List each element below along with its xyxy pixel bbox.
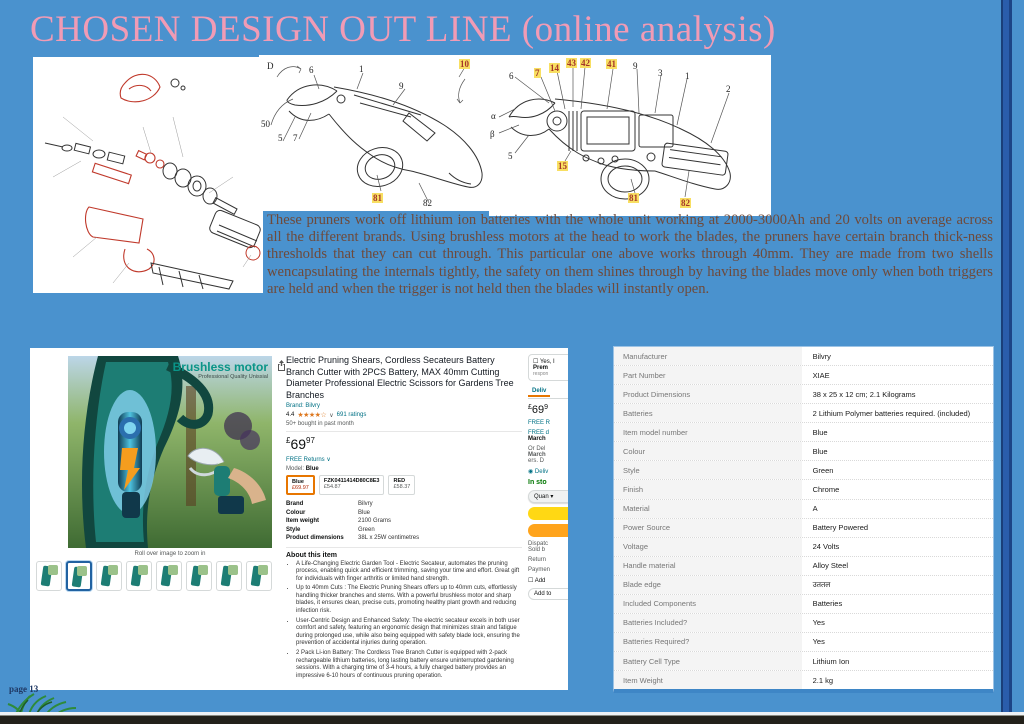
spec-value: XIAE: [802, 371, 993, 380]
delivery-tab[interactable]: Deliv: [528, 387, 550, 397]
spec-value: A: [802, 504, 993, 513]
free-returns-buybox-link[interactable]: FREE R: [528, 420, 568, 426]
diagram-part-label: 10: [459, 59, 470, 69]
product-thumbnail[interactable]: [66, 561, 92, 591]
diagram-part-label: β: [490, 129, 495, 139]
overview-spec-row: Brand Bilvry: [286, 500, 522, 509]
diagram-part-label: 9: [399, 81, 404, 91]
spec-table-row: Item Weight 2.1 kg: [614, 671, 993, 689]
spec-label: Batteries Included?: [614, 614, 802, 632]
product-main-image[interactable]: Brushless motor Professional Quality Uni…: [68, 356, 272, 548]
spec-label: Batteries: [614, 404, 802, 422]
amazon-product-screenshot: Brushless motor Professional Quality Uni…: [30, 348, 568, 690]
about-heading: About this item: [286, 552, 522, 559]
diagram-part-label: 81: [628, 193, 639, 203]
spec-value: उततल: [802, 580, 993, 590]
ratings-count-link[interactable]: 691 ratings: [337, 412, 367, 418]
spec-table-row: Batteries 2 Lithium Polymer batteries re…: [614, 404, 993, 423]
spec-table-row: Part Number XIAE: [614, 366, 993, 385]
about-bullet: A Life-Changing Electric Garden Tool - E…: [296, 561, 522, 584]
spec-label: Finish: [614, 480, 802, 498]
spec-value: Battery Powered: [802, 523, 993, 532]
spec-table-row: Voltage 24 Volts: [614, 538, 993, 557]
diagram-part-label: 14: [549, 63, 560, 73]
gift-checkbox[interactable]: ☐ Add: [528, 577, 568, 584]
diagram-part-label: 41: [606, 59, 617, 69]
model-row: Model: Blue: [286, 466, 522, 472]
product-thumbnail[interactable]: [126, 561, 152, 591]
diagram-part-label: 81: [372, 193, 383, 203]
spec-table-row: Batteries Included? Yes: [614, 614, 993, 633]
slide-title: CHOSEN DESIGN OUT LINE (online analysis): [30, 8, 990, 51]
diagram-part-label: 5: [508, 151, 513, 161]
diagram-part-label: 9: [633, 61, 638, 71]
brushless-motor-caption: Brushless motor: [173, 360, 268, 374]
spec-value: 24 Volts: [802, 542, 993, 551]
overview-spec-row: Style Green: [286, 526, 522, 535]
spec-label: Voltage: [614, 538, 802, 556]
product-thumbnail[interactable]: [96, 561, 122, 591]
free-returns-link[interactable]: FREE Returns ∨: [286, 456, 522, 463]
spec-table-row: Finish Chrome: [614, 480, 993, 499]
spec-value: Blue: [802, 428, 993, 437]
share-icon[interactable]: [277, 358, 286, 376]
spec-value: Yes: [802, 637, 993, 646]
exploded-view-diagram: [33, 57, 263, 293]
diagram-part-label: 6: [509, 71, 514, 81]
specification-table: Manufacturer Bilvry Part Number XIAE Pro…: [613, 346, 994, 693]
thumbnail-strip: [36, 561, 272, 591]
spec-value: Green: [802, 466, 993, 475]
spec-value: Blue: [802, 447, 993, 456]
spec-label: Item model number: [614, 423, 802, 441]
overview-spec-row: Product dimensions 38L x 25W centimetres: [286, 534, 522, 543]
diagram-part-label: D: [267, 61, 274, 71]
brand-link[interactable]: Brand: Bilvry: [286, 403, 522, 409]
spec-value: Bilvry: [802, 352, 993, 361]
bottom-dark-bar: [0, 715, 1024, 724]
diagram-part-label: 82: [680, 198, 691, 208]
product-info-column: Electric Pruning Shears, Cordless Secate…: [286, 355, 522, 682]
product-thumbnail[interactable]: [246, 561, 272, 591]
diagram-part-label: 82: [423, 198, 432, 208]
diagram-part-label: 6: [309, 65, 314, 75]
spec-table-row: Manufacturer Bilvry: [614, 347, 993, 366]
about-bullets: A Life-Changing Electric Garden Tool - E…: [296, 561, 522, 681]
cutaway-view-diagram: 67144342419312αβ5158182: [489, 55, 771, 216]
presentation-slide: CHOSEN DESIGN OUT LINE (online analysis): [0, 0, 1024, 724]
spec-table-row: Batteries Required? Yes: [614, 633, 993, 652]
bought-note: 50+ bought in past month: [286, 421, 522, 427]
product-thumbnail[interactable]: [216, 561, 242, 591]
diagram-part-label: 3: [658, 68, 663, 78]
spec-label: Blade edge: [614, 576, 802, 594]
diagram-part-label: 50: [261, 119, 270, 129]
deliver-to-link[interactable]: ◉ Deliv: [528, 468, 568, 475]
spec-value: Chrome: [802, 485, 993, 494]
spec-label: Colour: [614, 442, 802, 460]
buy-box-column: ☐ Yes, I Prem respon Deliv £699 FREE R F…: [528, 354, 568, 600]
spec-table-row: Material A: [614, 500, 993, 519]
spec-value: Yes: [802, 618, 993, 627]
buy-now-button[interactable]: [528, 524, 568, 537]
exploded-diagram-drawing: [33, 57, 263, 293]
overview-specs: Brand Bilvry Colour Blue Item weight 210…: [286, 500, 522, 543]
cutaway-diagram-drawing: [489, 55, 771, 216]
diagram-part-label: 42: [580, 58, 591, 68]
spec-value: Batteries: [802, 599, 993, 608]
spec-label: Part Number: [614, 366, 802, 384]
diagram-part-label: 7: [293, 133, 298, 143]
add-to-basket-button[interactable]: [528, 507, 568, 520]
variant-swatch[interactable]: Blue £69.97: [286, 475, 315, 495]
spec-table-row: Power Source Battery Powered: [614, 519, 993, 538]
spec-label: Included Components: [614, 595, 802, 613]
about-bullet: Up to 40mm Cuts : The Electric Pruning S…: [296, 585, 522, 615]
prime-offer-box[interactable]: ☐ Yes, I Prem respon: [528, 354, 568, 381]
diagram-part-label: 1: [685, 71, 690, 81]
rating-caret-icon[interactable]: ∨: [329, 412, 333, 419]
spec-table-row: Included Components Batteries: [614, 595, 993, 614]
product-thumbnail[interactable]: [156, 561, 182, 591]
spec-table-row: Product Dimensions 38 x 25 x 12 cm; 2.1 …: [614, 385, 993, 404]
spec-label: Handle material: [614, 557, 802, 575]
spec-table-row: Item model number Blue: [614, 423, 993, 442]
add-to-wishlist-button[interactable]: Add to: [528, 588, 568, 600]
stock-status: In sto: [528, 479, 568, 486]
buybox-price: £699: [528, 404, 568, 416]
variant-swatch[interactable]: RED £58.37: [388, 475, 415, 495]
diagram-part-label: 43: [566, 58, 577, 68]
rating-value: 4.4: [286, 412, 294, 418]
diagram-part-label: 15: [557, 161, 568, 171]
spec-label: Material: [614, 500, 802, 518]
right-border-strip: [1001, 0, 1012, 712]
spec-table-row: Colour Blue: [614, 442, 993, 461]
diagram-part-label: 1: [359, 64, 364, 74]
spec-value: 2 Lithium Polymer batteries required. (i…: [802, 409, 993, 418]
product-thumbnail[interactable]: [36, 561, 62, 591]
spec-table-row: Handle material Alloy Steel: [614, 557, 993, 576]
spec-table-row: Blade edge उततल: [614, 576, 993, 595]
image-overlay-text: Brushless motor Professional Quality Uni…: [173, 360, 268, 380]
diagram-part-label: 7: [534, 68, 541, 78]
quantity-selector[interactable]: Quan ▾: [528, 490, 568, 503]
overview-spec-row: Colour Blue: [286, 509, 522, 518]
spec-label: Manufacturer: [614, 347, 802, 365]
star-rating-icon[interactable]: ★★★★☆: [297, 411, 326, 419]
spec-value: Alloy Steel: [802, 561, 993, 570]
spec-value: 2.1 kg: [802, 676, 993, 685]
diagram-part-label: α: [491, 111, 496, 121]
analysis-paragraph: These pruners work off lithium ion batte…: [267, 212, 993, 298]
spec-label: Item Weight: [614, 671, 802, 689]
spec-label: Batteries Required?: [614, 633, 802, 651]
prime-checkbox[interactable]: ☐ Yes, I: [533, 358, 568, 365]
about-bullet: 2 Pack Li-ion Battery: The Cordless Tree…: [296, 650, 522, 680]
price: £6997: [286, 436, 522, 454]
variant-swatches: Blue £69.97 FZK0411414D80C8E3 £54.87 RED…: [286, 475, 522, 495]
spec-label: Style: [614, 461, 802, 479]
about-bullet: User-Centric Design and Enhanced Safety:…: [296, 618, 522, 648]
rollover-caption: Roll over image to zoom in: [68, 551, 272, 557]
product-thumbnail[interactable]: [186, 561, 212, 591]
variant-swatch[interactable]: FZK0411414D80C8E3 £54.87: [319, 475, 385, 495]
overview-spec-row: Item weight 2100 Grams: [286, 517, 522, 526]
spec-label: Battery Cell Type: [614, 652, 802, 670]
spec-table-row: Battery Cell Type Lithium Ion: [614, 652, 993, 671]
diagram-part-label: 5: [278, 133, 283, 143]
spec-value: Lithium Ion: [802, 657, 993, 666]
spec-table-row: Style Green: [614, 461, 993, 480]
product-title[interactable]: Electric Pruning Shears, Cordless Secate…: [286, 355, 522, 401]
diagram-part-label: 2: [726, 84, 731, 94]
spec-label: Product Dimensions: [614, 385, 802, 403]
spec-value: 38 x 25 x 12 cm; 2.1 Kilograms: [802, 390, 993, 399]
side-view-diagram: D6191050578182: [259, 55, 490, 211]
rating-row: 4.4 ★★★★☆ ∨ 691 ratings: [286, 411, 522, 419]
spec-label: Power Source: [614, 519, 802, 537]
